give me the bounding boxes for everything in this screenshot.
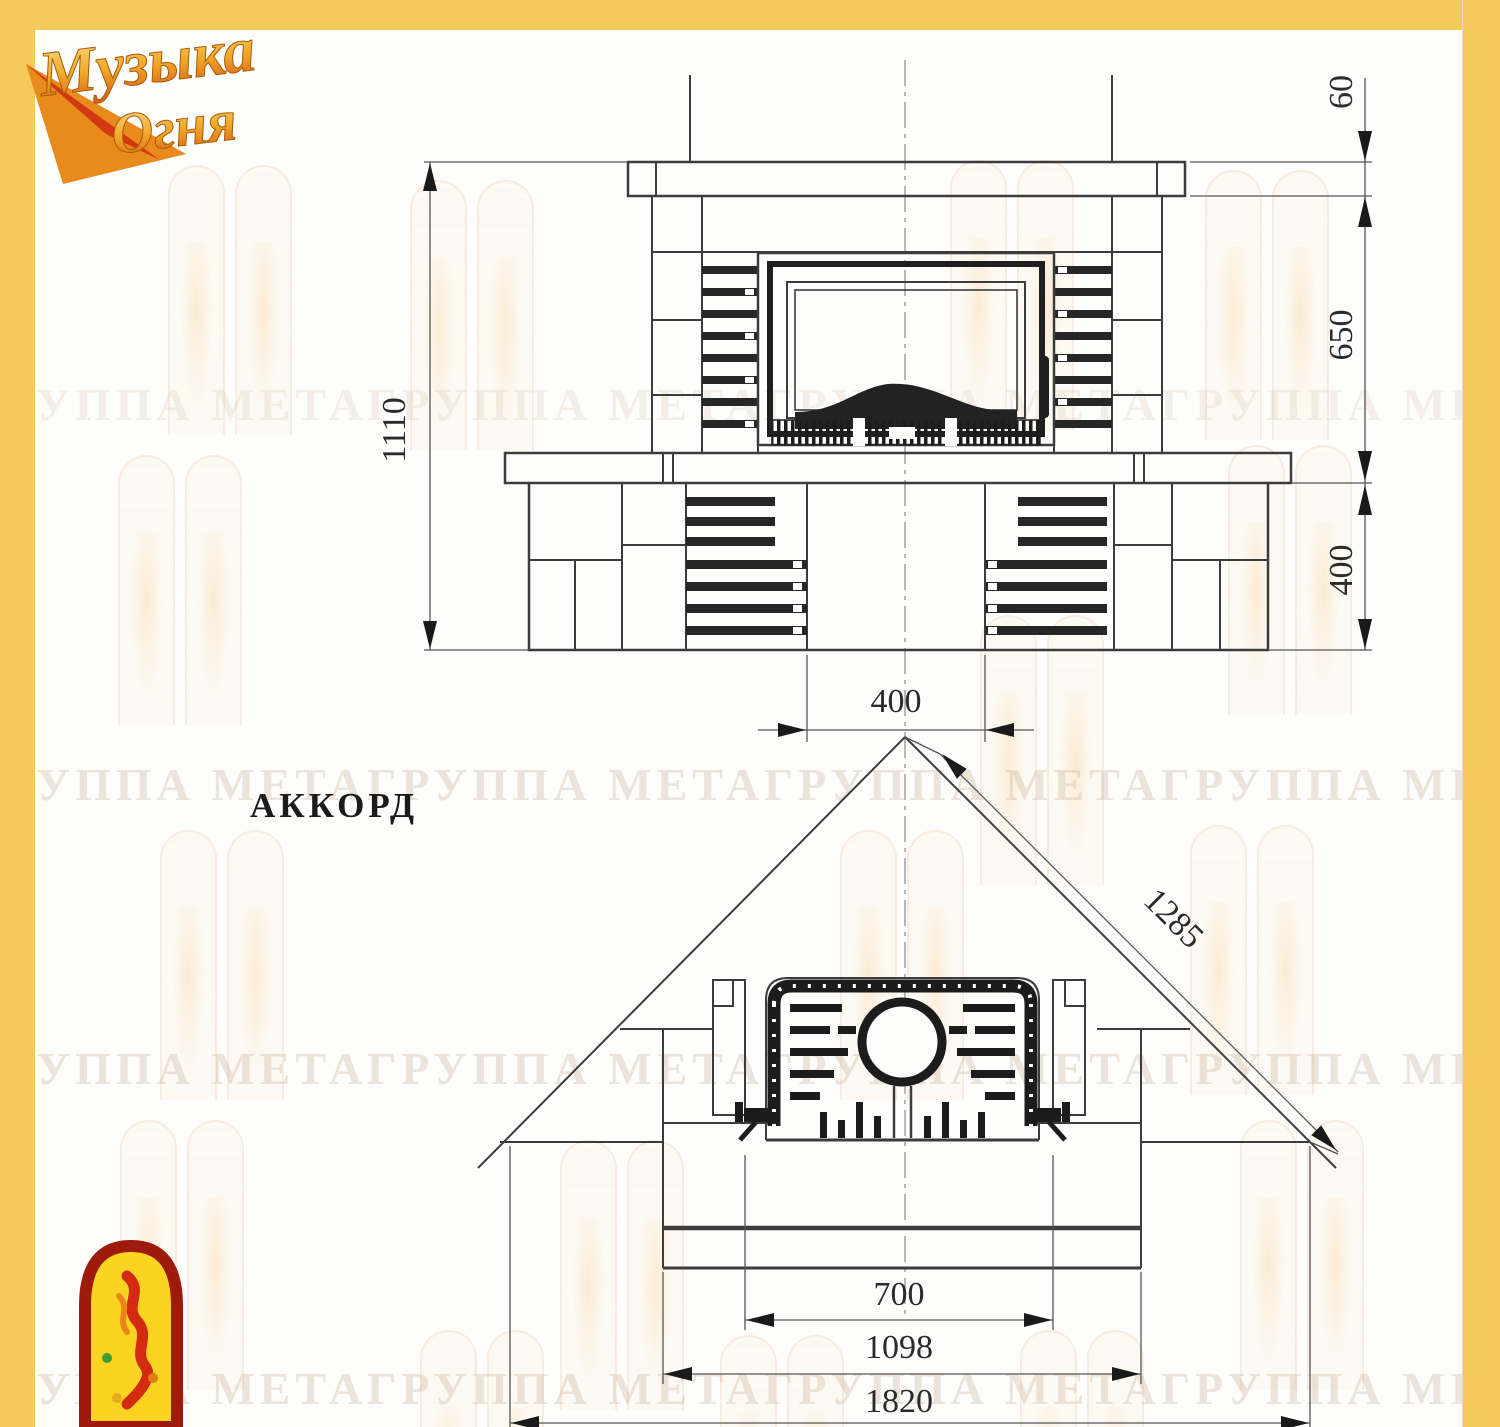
dim-front-total-height: 1110	[376, 397, 413, 462]
model-title: АККОРД	[250, 786, 418, 826]
logo-word-2: Огня	[108, 87, 240, 167]
technical-drawing: 1110 60 650 400	[0, 0, 1500, 1427]
wall-diagonal-right	[905, 737, 1336, 1168]
dim-front-base: 400	[1323, 545, 1360, 596]
base	[529, 483, 1268, 650]
dim-front-opening: 650	[1323, 310, 1360, 361]
left-pillar	[652, 252, 702, 453]
firebox-plan	[735, 978, 1070, 1140]
plan-right-wall	[1053, 980, 1085, 1115]
drawing-sheet: ГРУППА МЕТАГРУППА МЕТАГРУППА МЕТАГРУППА …	[0, 0, 1500, 1427]
plan-dimensions: 1285 700 1098	[510, 737, 1338, 1427]
plan-left-wall	[713, 980, 745, 1115]
front-view	[505, 75, 1291, 650]
plan-view	[478, 737, 1336, 1268]
dim-plan-body: 1098	[865, 1329, 933, 1366]
dim-plan-opening: 700	[874, 1276, 925, 1313]
door-handle	[1040, 356, 1049, 418]
dim-plan-overall: 1820	[865, 1383, 933, 1420]
corner-emblem	[73, 1236, 189, 1427]
brand-logo: Музыка Огня	[8, 2, 308, 197]
firebox-front	[758, 253, 1054, 446]
frieze	[652, 196, 1162, 252]
page-frame-right	[1462, 0, 1500, 1427]
hearth-shelf	[505, 453, 1291, 483]
page-frame-left	[0, 0, 35, 1427]
right-pillar	[1112, 252, 1162, 453]
flue-circle	[862, 1002, 942, 1082]
dim-plan-diagonal: 1285	[1136, 881, 1210, 955]
dim-front-niche: 400	[871, 683, 922, 720]
wall-diagonal-left	[478, 737, 905, 1168]
mantel-shelf	[628, 162, 1185, 196]
dim-front-mantel: 60	[1323, 75, 1360, 109]
